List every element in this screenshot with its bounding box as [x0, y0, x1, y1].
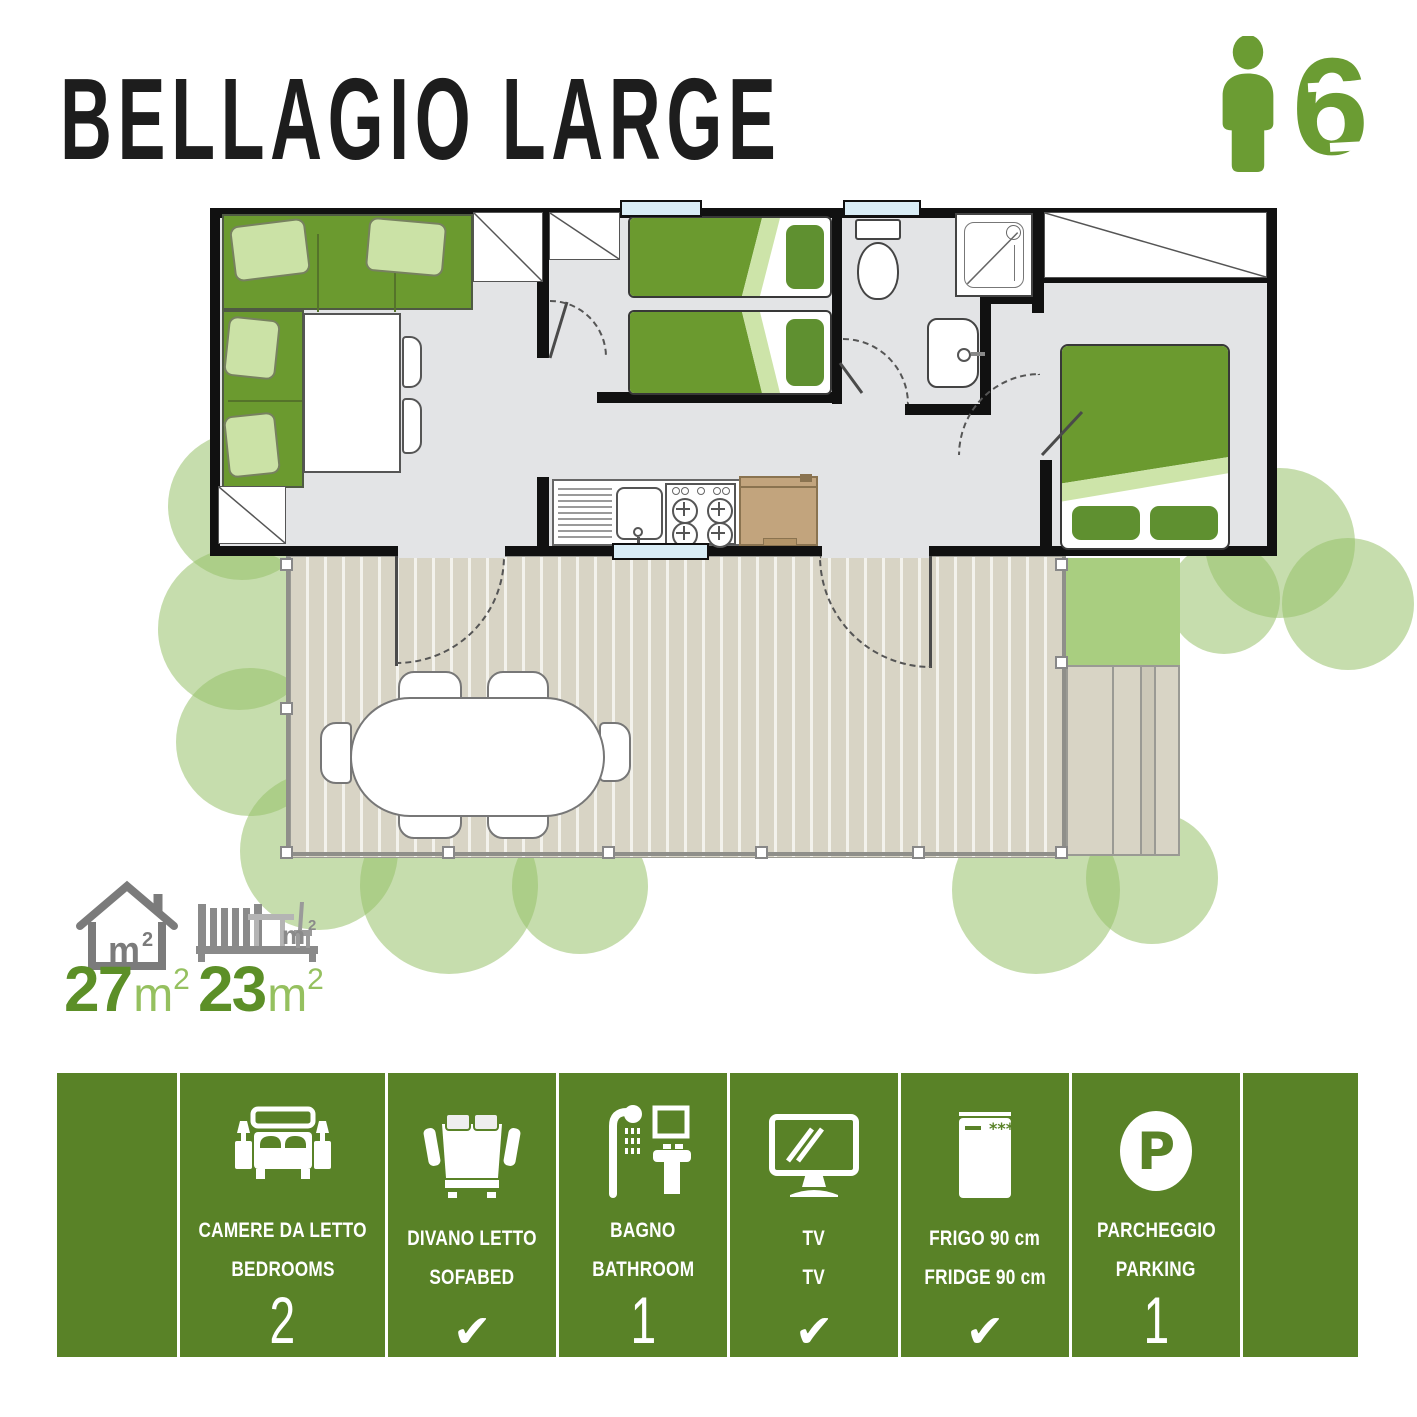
- deck-post: [1055, 656, 1068, 669]
- sofa-cushion: [223, 411, 281, 478]
- corner-cabinet: [549, 212, 620, 260]
- deck-post: [442, 846, 455, 859]
- window: [620, 200, 702, 217]
- capacity-value: 6: [1292, 38, 1369, 176]
- deck-post: [755, 846, 768, 859]
- deck-post: [1055, 558, 1068, 571]
- amenity-label-it: DIVANO LETTO: [407, 1227, 537, 1251]
- amenity-value: 2: [270, 1284, 296, 1357]
- amenity-tv: TV TV ✔: [730, 1073, 898, 1357]
- single-bed: [628, 216, 832, 298]
- tree: [1282, 538, 1414, 670]
- double-bed: [1060, 344, 1230, 550]
- interior-area-value: 27: [64, 952, 131, 1026]
- deck-post: [1055, 846, 1068, 859]
- amenity-label-en: BEDROOMS: [231, 1258, 334, 1282]
- amenity-parking: P PARCHEGGIO PARKING 1: [1072, 1073, 1240, 1357]
- deck-rail-bottom: [286, 852, 1066, 856]
- door-opening: [398, 544, 505, 558]
- amenity-label-en: FRIDGE 90 cm: [924, 1266, 1046, 1290]
- amenity-label-en: PARKING: [1116, 1258, 1196, 1282]
- amenity-value: 1: [630, 1284, 656, 1357]
- page-title: BELLAGIO LARGE: [60, 52, 781, 186]
- amenity-bedrooms: CAMERE DA LETTO BEDROOMS 2: [180, 1073, 385, 1357]
- svg-text:2: 2: [308, 917, 316, 934]
- amenity-bathroom: BAGNO BATHROOM 1: [559, 1073, 727, 1357]
- interior-area-sup: 2: [173, 963, 190, 997]
- svg-text:m: m: [282, 920, 305, 950]
- chair: [402, 398, 422, 454]
- terrace-area-unit: m: [267, 968, 307, 1023]
- sofa-cushion: [365, 217, 447, 278]
- brochure-page: BELLAGIO LARGE 6: [0, 0, 1417, 1417]
- deck-post: [602, 846, 615, 859]
- interior-area: 27m2: [64, 952, 190, 1026]
- stencil-slit: [1330, 141, 1366, 152]
- amenity-label-it: FRIGO 90 cm: [930, 1227, 1041, 1251]
- step-tread: [1142, 667, 1154, 854]
- kitchen-cabinet: [739, 476, 818, 546]
- amenity-label-en: TV: [803, 1266, 825, 1290]
- amenity-value: ✔: [795, 1306, 834, 1357]
- deck-chair: [320, 722, 352, 784]
- parking-icon: P: [1101, 1097, 1211, 1207]
- fridge-icon: ***: [925, 1097, 1045, 1215]
- amenity-empty-left: [57, 1073, 177, 1357]
- amenity-label-it: CAMERE DA LETTO: [198, 1219, 366, 1243]
- deck-post: [280, 846, 293, 859]
- amenity-sofabed: DIVANO LETTO SOFABED ✔: [388, 1073, 556, 1357]
- step-tread: [1154, 667, 1156, 854]
- amenity-label-en: SOFABED: [430, 1266, 515, 1290]
- wall: [1044, 278, 1267, 283]
- deck-steps: [1066, 665, 1180, 856]
- toilet-tank: [855, 219, 901, 240]
- window: [612, 543, 709, 560]
- svg-text:2: 2: [142, 929, 153, 951]
- door-opening: [822, 544, 929, 558]
- amenity-label-it: PARCHEGGIO: [1097, 1219, 1216, 1243]
- corner-cabinet: [218, 486, 286, 544]
- terrace-area-value: 23: [198, 952, 265, 1026]
- interior-area-unit: m: [133, 968, 173, 1023]
- amenity-value: 1: [1143, 1284, 1169, 1357]
- amenity-value: ✔: [453, 1306, 492, 1357]
- window: [843, 200, 921, 217]
- hedge: [1066, 558, 1180, 665]
- dining-table: [303, 313, 401, 473]
- chair: [402, 336, 422, 388]
- terrace-area-sup: 2: [307, 963, 324, 997]
- tv-icon: [754, 1097, 874, 1215]
- sofa-cushion: [223, 315, 281, 380]
- amenity-label-it: TV: [803, 1227, 825, 1251]
- single-bed: [628, 310, 832, 395]
- step-tread: [1112, 667, 1114, 854]
- capacity-badge: 6: [1212, 36, 1392, 176]
- toilet-bowl: [857, 242, 899, 300]
- deck-post: [280, 558, 293, 571]
- bathroom-icon: [583, 1097, 703, 1207]
- bed-icon: [223, 1097, 343, 1207]
- wall: [537, 477, 549, 546]
- wall: [832, 218, 842, 404]
- tree: [1168, 542, 1280, 654]
- amenities-table: CAMERE DA LETTO BEDROOMS 2 DIVANO LETTO …: [57, 1073, 1358, 1357]
- corner-cabinet: [473, 212, 543, 282]
- amenity-fridge: *** FRIGO 90 cm FRIDGE 90 cm ✔: [901, 1073, 1069, 1357]
- sink-faucet: [633, 527, 643, 537]
- shower: [955, 213, 1033, 297]
- deck-post: [912, 846, 925, 859]
- terrace-area: 23m2: [198, 952, 324, 1026]
- amenity-value: ✔: [966, 1306, 1005, 1357]
- bathroom-sink: [927, 318, 979, 388]
- wardrobe: [1044, 212, 1267, 278]
- svg-text:***: ***: [989, 1119, 1015, 1138]
- kitchen-drainboard: [558, 488, 612, 540]
- amenity-label-it: BAGNO: [610, 1219, 675, 1243]
- amenity-empty-right: [1243, 1073, 1358, 1357]
- deck-post: [280, 702, 293, 715]
- outdoor-table: [350, 697, 605, 817]
- wall: [1040, 460, 1052, 546]
- svg-text:P: P: [1137, 1122, 1175, 1182]
- sofa-cushion: [229, 218, 311, 283]
- amenity-label-en: BATHROOM: [592, 1258, 694, 1282]
- sofabed-icon: [412, 1097, 532, 1215]
